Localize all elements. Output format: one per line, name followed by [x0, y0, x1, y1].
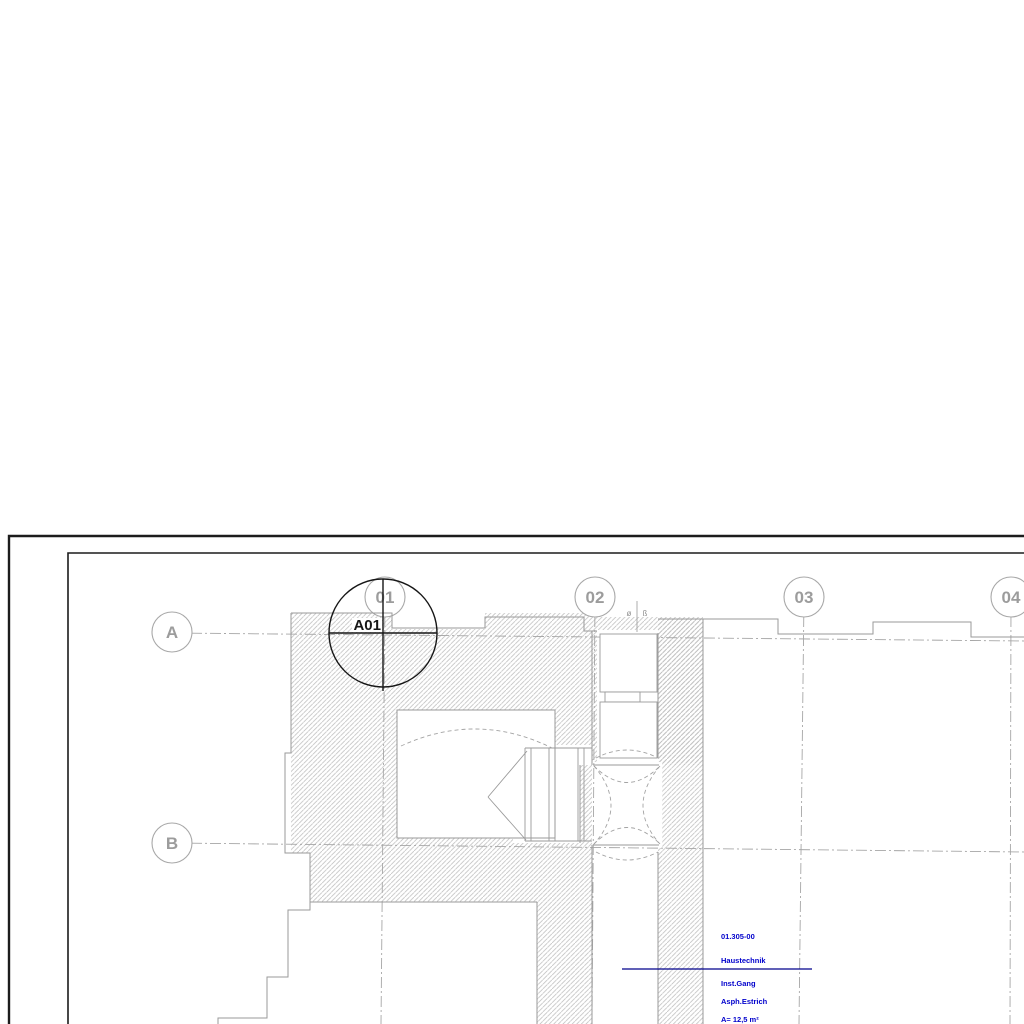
grid-line-04 [1010, 597, 1011, 1024]
passage-door-tab [605, 692, 640, 702]
grid-bubble-A: A [152, 612, 192, 652]
passage-door-leaf-upper [600, 634, 657, 692]
grid-bubble-04-label: 04 [1002, 588, 1021, 607]
west-wall-notch [286, 853, 310, 910]
room-stamp-extra: A= 12,5 m² [721, 1015, 759, 1024]
room-stamp-usage: Inst.Gang [721, 979, 756, 988]
grid-line-03 [799, 597, 804, 1024]
room-stamp-name: Haustechnik [721, 956, 766, 965]
cad-sheet-view: A B 01 02 03 04 [0, 0, 1024, 1024]
grid-bubble-02: 02 [575, 577, 615, 617]
grid-bubble-02-label: 02 [586, 588, 605, 607]
grid-bubble-B-label: B [166, 834, 178, 853]
cross-vault-bay [592, 762, 662, 848]
grid-bubble-03: 03 [784, 577, 824, 617]
micro-annotation-right: ß [643, 609, 648, 618]
room-stamp-number: 01.305-00 [721, 932, 755, 941]
grid-bubble-01-label: 01 [376, 588, 395, 607]
corridor [592, 848, 658, 1024]
grid-bubble-04: 04 [991, 577, 1024, 617]
grid-bubble-A-label: A [166, 623, 178, 642]
passage-door-leaf-lower [600, 702, 657, 758]
north-facade-east-outline [703, 619, 1024, 637]
micro-annotation-left: ø [627, 609, 632, 618]
grid-bubble-03-label: 03 [795, 588, 814, 607]
door-opening [513, 745, 580, 843]
grid-bubble-01: 01 [365, 577, 405, 617]
north-wall-notch [392, 606, 485, 629]
south-wall-outline [288, 902, 537, 910]
wall-hatch-corridor-left [537, 902, 592, 1024]
floorplan-canvas: A B 01 02 03 04 [0, 0, 1024, 1024]
detail-callout-label: A01 [353, 617, 381, 634]
room-stamp-floor-finish: Asph.Estrich [721, 997, 768, 1006]
grid-bubble-B: B [152, 823, 192, 863]
